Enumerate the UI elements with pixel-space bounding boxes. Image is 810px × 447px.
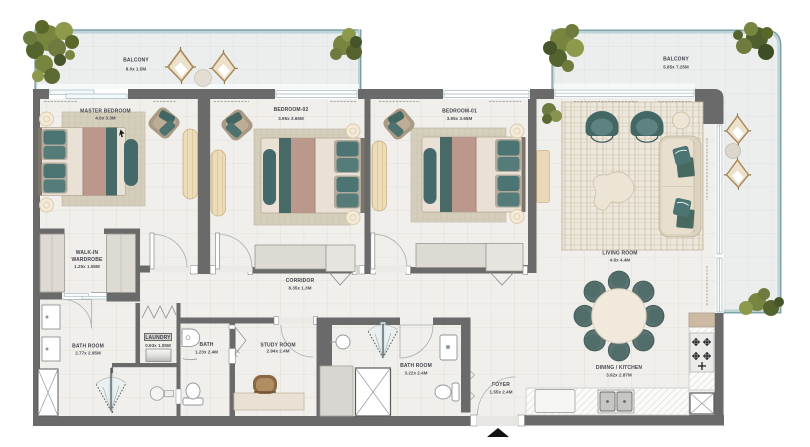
svg-text:BATH: BATH (199, 342, 213, 348)
svg-text:BATH ROOM: BATH ROOM (72, 344, 104, 350)
svg-text:2.77x 2.95M: 2.77x 2.95M (75, 351, 101, 356)
svg-text:0.93x 1.05M: 0.93x 1.05M (145, 343, 171, 348)
svg-text:WARDROBE: WARDROBE (72, 257, 103, 263)
svg-text:1.55x 2.4M: 1.55x 2.4M (489, 390, 512, 395)
svg-text:DINING / KITCHEN: DINING / KITCHEN (596, 365, 643, 371)
svg-text:3.95x 3.65M: 3.95x 3.65M (278, 116, 304, 121)
svg-text:3.92x 2.87M: 3.92x 2.87M (606, 373, 632, 378)
svg-text:4.0x 3.3M: 4.0x 3.3M (95, 116, 116, 121)
svg-text:5.85x 7.25M: 5.85x 7.25M (663, 65, 689, 70)
svg-text:8.35x 1.3M: 8.35x 1.3M (288, 286, 311, 291)
svg-text:WALK-IN: WALK-IN (76, 250, 99, 256)
svg-text:3.95x 3.65M: 3.95x 3.65M (447, 116, 473, 121)
svg-text:4.6x 4.4M: 4.6x 4.4M (610, 258, 631, 263)
svg-text:BEDROOM-01: BEDROOM-01 (442, 109, 477, 115)
svg-text:LAUNDRY: LAUNDRY (145, 335, 171, 341)
svg-text:1.23x 2.4M: 1.23x 2.4M (195, 350, 218, 355)
svg-text:1.25x 1.55M: 1.25x 1.55M (74, 264, 100, 269)
svg-text:BALCONY: BALCONY (663, 57, 689, 63)
svg-text:BALCONY: BALCONY (123, 58, 149, 64)
svg-text:3.22x 2.4M: 3.22x 2.4M (404, 371, 427, 376)
svg-text:LIVING ROOM: LIVING ROOM (602, 251, 637, 257)
svg-text:CORRIDOR: CORRIDOR (286, 278, 315, 284)
svg-text:2.94x 2.4M: 2.94x 2.4M (266, 349, 289, 354)
svg-text:BATH ROOM: BATH ROOM (400, 363, 432, 369)
svg-text:BEDROOM-02: BEDROOM-02 (274, 107, 309, 113)
svg-text:MASTER BEDROOM: MASTER BEDROOM (80, 109, 131, 115)
svg-text:8.0x 1.5M: 8.0x 1.5M (126, 67, 147, 72)
